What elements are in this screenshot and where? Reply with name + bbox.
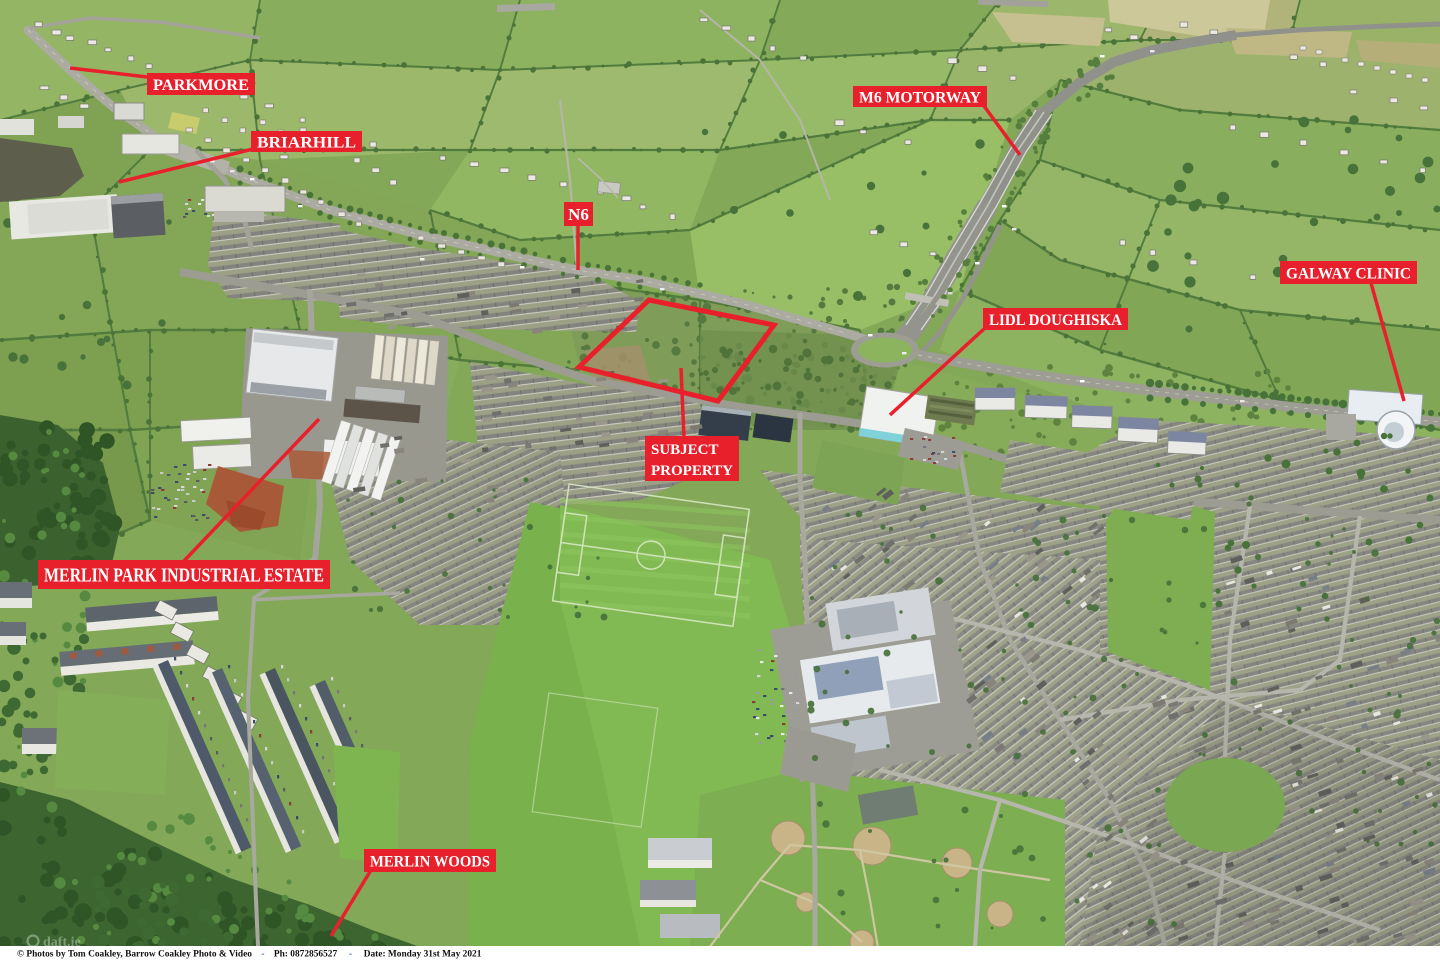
- svg-text:N6: N6: [568, 205, 589, 224]
- svg-text:GALWAY CLINIC: GALWAY CLINIC: [1286, 265, 1411, 282]
- svg-text:PROPERTY: PROPERTY: [651, 463, 733, 479]
- svg-text:LIDL DOUGHISKA: LIDL DOUGHISKA: [989, 312, 1122, 329]
- svg-text:MERLIN PARK INDUSTRIAL ESTATE: MERLIN PARK INDUSTRIAL ESTATE: [44, 565, 324, 587]
- svg-text:BRIARHILL: BRIARHILL: [257, 134, 356, 151]
- svg-text:MERLIN WOODS: MERLIN WOODS: [370, 853, 490, 870]
- svg-text:M6 MOTORWAY: M6 MOTORWAY: [859, 89, 981, 106]
- svg-text:© Photos by Tom Coakley, Barro: © Photos by Tom Coakley, Barrow Coakley …: [17, 949, 482, 960]
- svg-text:PARKMORE: PARKMORE: [153, 77, 249, 94]
- svg-text:SUBJECT: SUBJECT: [651, 442, 719, 458]
